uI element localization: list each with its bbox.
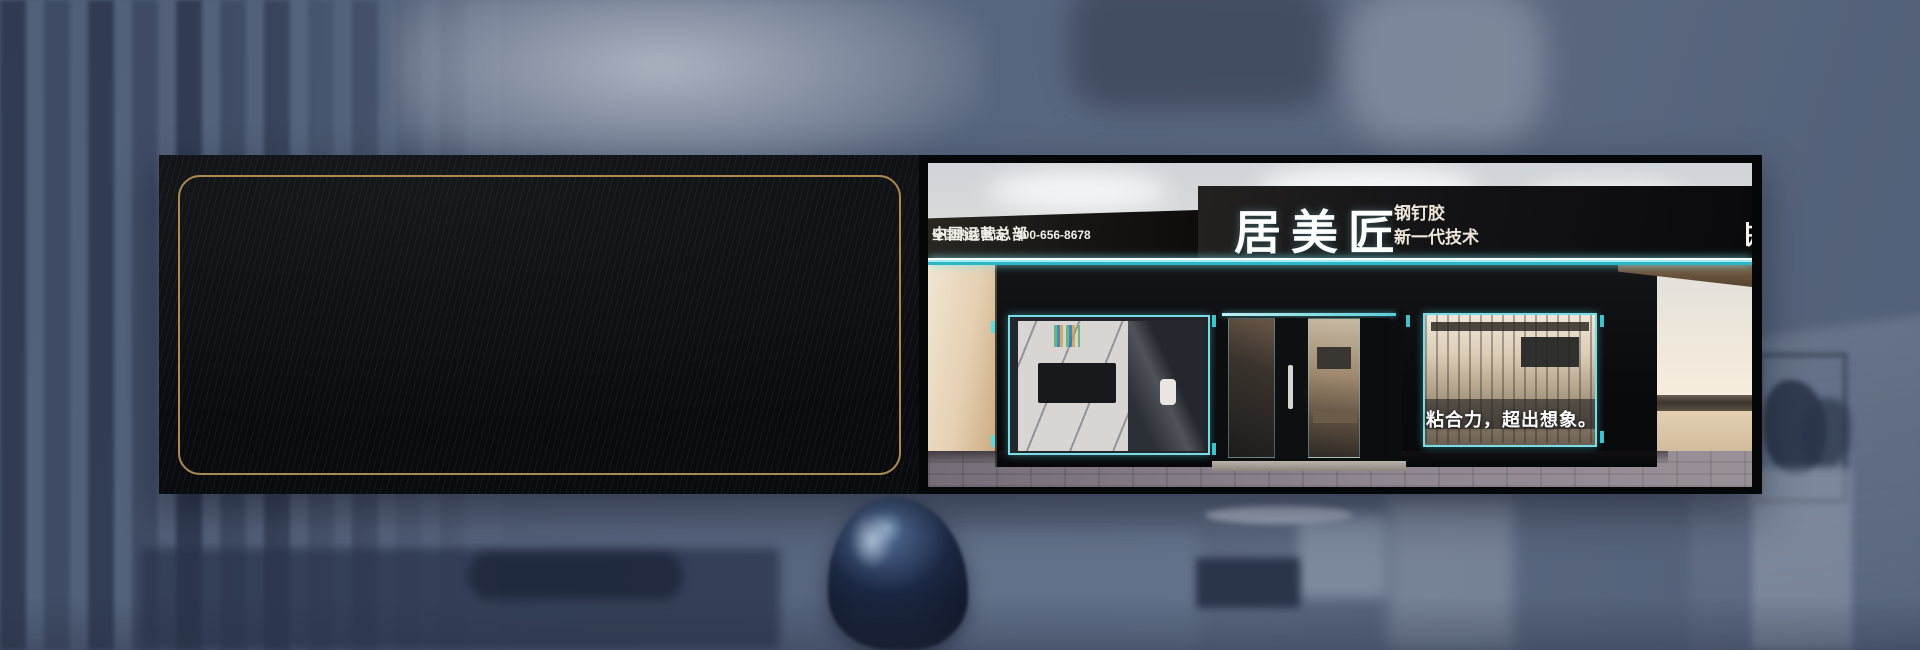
display-window-left <box>1008 315 1210 455</box>
interior-counter <box>1313 411 1357 423</box>
neon-dash <box>1406 315 1410 327</box>
door-right-stile <box>1360 318 1390 458</box>
neon-dash <box>1600 431 1604 443</box>
sunlit-side-wall <box>928 265 995 451</box>
background-light-blob <box>395 0 985 180</box>
background-plant-silhouette-2 <box>1800 398 1850 468</box>
brand-subtitle: 钢钉胶 新一代技术 <box>1394 202 1479 250</box>
brand-name: 居美匠 <box>1234 194 1405 263</box>
banner-stage: 粘性强 不滑移不 垂坠承重大 适用面广 无需底涂粘 接绝大多材料 保护基材 不腐… <box>0 0 1920 650</box>
background-chair <box>1298 514 1386 598</box>
vase-highlight <box>850 511 894 569</box>
main-sign-board: 居美匠 钢钉胶 新一代技术 开启环保之美 <box>1198 186 1752 265</box>
product-name: 钢钉胶 <box>1394 202 1479 226</box>
storefront-photo-frame: 粘合力，超出想象。 中国运营总部 全国热线电话：400-656-8678 居美匠 <box>919 155 1762 494</box>
door-neon-trim <box>1222 313 1396 316</box>
background-dark-blob <box>1070 0 1330 110</box>
neon-dash <box>991 321 995 333</box>
neon-dash <box>1212 315 1216 327</box>
background-cabinet-objects <box>468 552 683 600</box>
window-slogan-text: 粘合力，超出想象。 <box>1426 406 1597 432</box>
white-roll <box>1160 379 1176 405</box>
hq-sign-board: 中国运营总部 全国热线电话：400-656-8678 <box>928 210 1198 262</box>
sign-neon-strip <box>928 258 1752 265</box>
neon-dash <box>1212 443 1216 455</box>
background-bottom-shade <box>0 596 1920 650</box>
slogan-bar-right <box>1746 222 1749 246</box>
display-board <box>1038 363 1116 403</box>
product-shelf <box>1054 325 1080 347</box>
feature-card-grid: 粘性强 不滑移不 垂坠承重大 适用面广 无需底涂粘 接绝大多材料 保护基材 不腐… <box>269 195 797 461</box>
brand-tagline: 新一代技术 <box>1394 226 1479 250</box>
neon-dash <box>991 435 995 447</box>
cloud <box>988 171 1168 211</box>
door-handle <box>1288 365 1293 409</box>
door-glass-right <box>1308 318 1360 458</box>
entrance-door <box>1216 310 1402 465</box>
interior-art <box>1317 347 1351 369</box>
billboard: 粘性强 不滑移不 垂坠承重大 适用面广 无需底涂粘 接绝大多材料 保护基材 不腐… <box>159 155 1762 494</box>
door-step <box>1212 461 1406 471</box>
hotline-number: 全国热线电话：400-656-8678 <box>932 226 1091 243</box>
storefront-photo: 粘合力，超出想象。 中国运营总部 全国热线电话：400-656-8678 居美匠 <box>928 163 1752 487</box>
background-light-blob-right <box>1345 0 1545 145</box>
door-glass-left <box>1228 318 1275 458</box>
neon-dash <box>1600 315 1604 327</box>
